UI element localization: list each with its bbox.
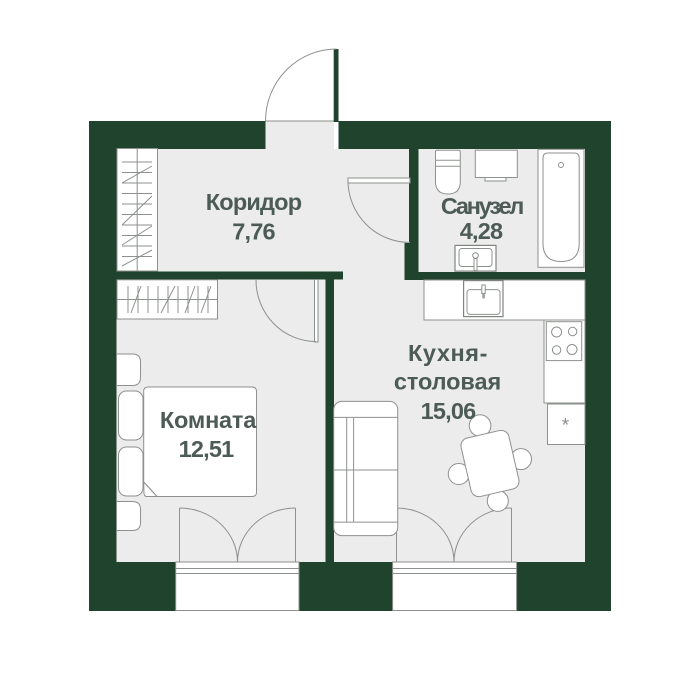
svg-text:7,76: 7,76 <box>232 219 275 245</box>
svg-text:12,51: 12,51 <box>179 436 235 462</box>
svg-text:15,06: 15,06 <box>421 398 477 424</box>
svg-text:Коридор: Коридор <box>206 189 302 215</box>
svg-text:4,28: 4,28 <box>460 218 503 244</box>
svg-text:Кухня-: Кухня- <box>408 340 488 366</box>
svg-text:Санузел: Санузел <box>441 193 524 219</box>
svg-text:столовая: столовая <box>394 369 501 395</box>
svg-text:*: * <box>562 416 570 437</box>
svg-text:Комната: Комната <box>160 407 257 433</box>
